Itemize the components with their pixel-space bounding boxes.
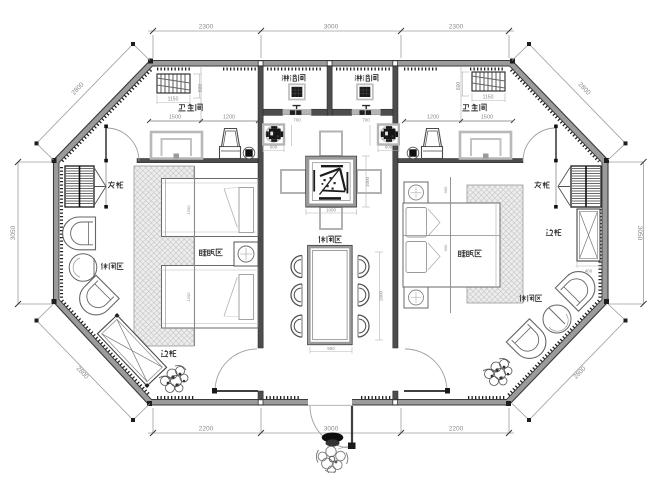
svg-text:1500: 1500 [481, 115, 493, 121]
svg-text:900: 900 [327, 346, 335, 351]
svg-text:600: 600 [385, 145, 393, 150]
svg-text:3000: 3000 [324, 426, 339, 433]
svg-text:2300: 2300 [449, 24, 464, 31]
svg-text:3000: 3000 [324, 24, 339, 31]
svg-text:1500: 1500 [169, 115, 181, 121]
svg-text:3050: 3050 [10, 225, 17, 240]
svg-text:2300: 2300 [199, 24, 214, 31]
svg-text:700: 700 [293, 118, 301, 123]
svg-text:900: 900 [443, 244, 448, 251]
svg-text:1200: 1200 [186, 205, 191, 215]
svg-text:2000: 2000 [379, 290, 384, 301]
svg-text:600: 600 [270, 145, 278, 150]
svg-text:2200: 2200 [199, 426, 214, 433]
svg-text:1200: 1200 [186, 292, 191, 302]
svg-text:2200: 2200 [449, 426, 464, 433]
svg-text:1000: 1000 [365, 176, 370, 187]
svg-text:1200: 1200 [223, 115, 235, 121]
svg-text:1150: 1150 [483, 95, 494, 101]
svg-text:1150: 1150 [168, 97, 179, 103]
svg-text:900: 900 [443, 186, 448, 193]
svg-text:700: 700 [362, 118, 370, 123]
svg-text:3050: 3050 [636, 226, 643, 241]
svg-text:1200: 1200 [427, 115, 439, 121]
svg-text:1000: 1000 [326, 208, 337, 213]
